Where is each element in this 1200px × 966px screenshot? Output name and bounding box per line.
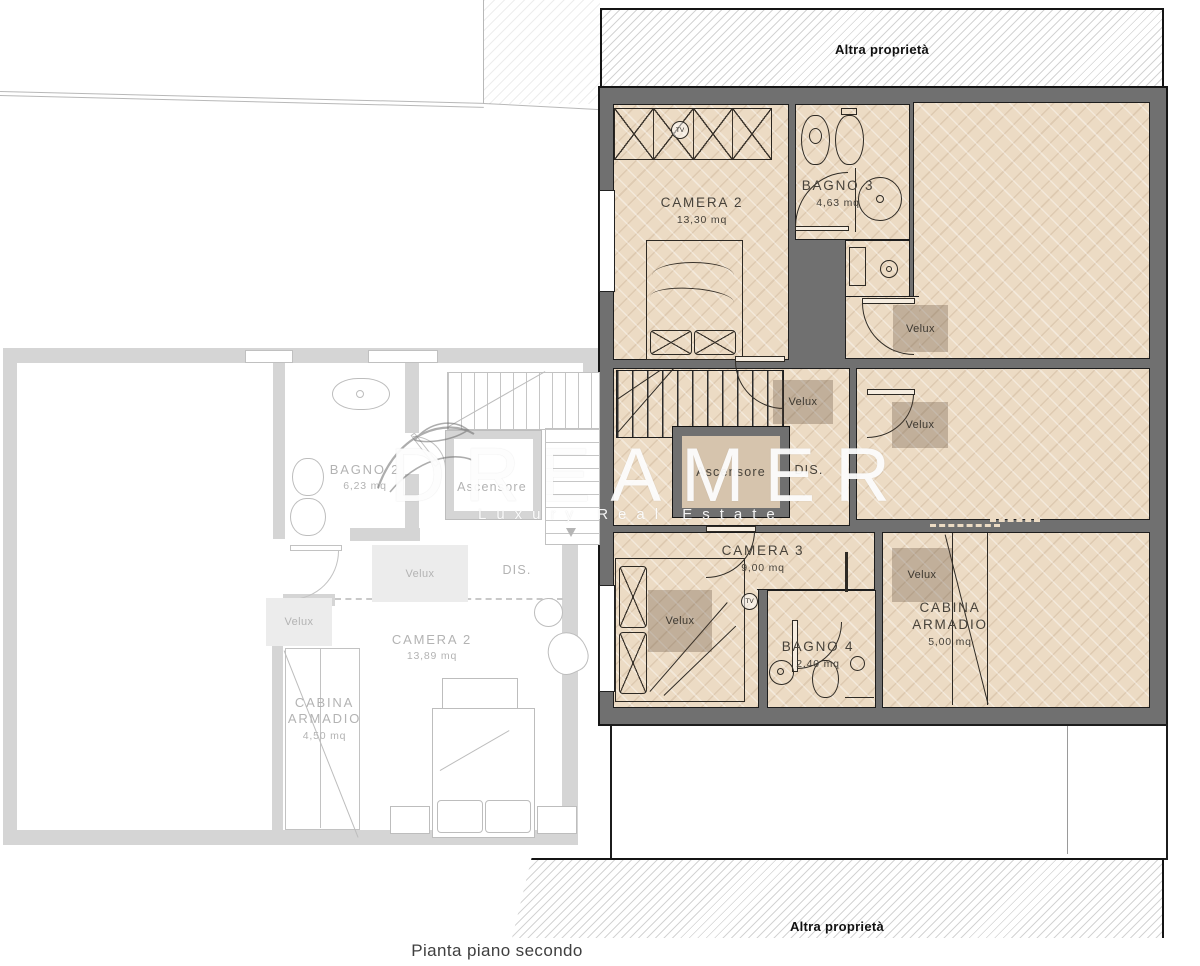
neighbor-roof-hatch [484,0,600,104]
plan-caption: Pianta piano secondo [297,941,697,961]
window [599,585,615,692]
floor-plan-canvas: Altra proprietà TV [0,0,1200,966]
velux-skylight: Velux [893,305,948,352]
bg-nightstand [537,806,577,834]
shower-line [845,697,874,698]
pillow [619,632,647,694]
wardrobe-cell [733,109,771,159]
parcel-divider-line [1067,726,1068,854]
camera2-label: CAMERA 2 13,30 mq [632,195,772,227]
flush-plate [841,108,857,115]
bg-door-arc [290,551,339,600]
sliding-door-line [845,552,848,592]
hall-label: DIS. [789,462,829,478]
toilet [835,115,864,165]
bg-toilet [290,498,326,536]
bg-wall [562,518,578,836]
bg-armchair [541,626,594,681]
pillow [694,330,736,355]
other-property-band-top: Altra proprietà [600,8,1164,90]
bg-window [245,350,293,363]
bg-wall [3,348,598,363]
bg-wall [273,363,285,539]
bg-window [368,350,438,363]
brand-flourish-icon [360,400,480,510]
wall-opening-dashed [930,524,1000,527]
bg-wall [350,528,420,541]
bg-nightstand [390,806,430,834]
bg-velux-skylight: Velux [372,545,468,602]
bg-pillow [437,800,483,833]
wardrobe-cell [615,109,654,159]
blanket-line [652,262,734,289]
bg-pillow [485,800,531,833]
room-top-right [913,102,1150,359]
pillow [619,566,647,628]
bg-side-table [534,598,563,627]
bg-camera2-label: CAMERA 2 13,89 mq [362,632,502,663]
camera3-label: CAMERA 3 9,00 mq [693,543,833,575]
cabina-armadio-label: CABINA ARMADIO 5,00 mq [905,600,995,649]
boundary-line [484,103,600,110]
other-property-band-bottom: Altra proprietà [512,858,1164,938]
boundary-line [0,91,484,108]
bg-hall-label: DIS. [497,562,537,578]
velux-skylight: Velux [892,402,948,448]
window [599,190,615,292]
pillow [650,330,692,355]
bg-bed-headboard [442,678,518,710]
velux-skylight: Velux [892,548,952,602]
elevator-label: Ascensore [681,464,781,480]
bagno3-label: BAGNO 3 4,63 mq [778,178,898,210]
wardrobe-camera2 [614,108,772,160]
other-property-label-top: Altra proprietà [835,42,929,57]
bg-wall [3,348,17,845]
tv-icon: TV [671,121,689,139]
lower-parcel-outline [610,724,1168,860]
bidet-detail [809,128,822,144]
velux-skylight: Velux [648,590,712,652]
tv-icon: TV [741,593,758,610]
bg-sink-drain [356,390,364,398]
shower-shelf [849,247,866,286]
shower-knob-dot [886,266,892,272]
velux-skylight: Velux [773,380,833,424]
bg-cabina-armadio-label: CABINA ARMADIO 4,50 mq [282,695,367,743]
other-property-label-bottom: Altra proprietà [512,919,1162,934]
wardrobe-cell [694,109,733,159]
bg-stair-arrow [566,528,576,537]
wall-opening-dashed [990,519,1040,522]
bagno4-label: BAGNO 4 2,40 mq [758,639,878,671]
bg-velux-skylight: Velux [266,598,332,646]
